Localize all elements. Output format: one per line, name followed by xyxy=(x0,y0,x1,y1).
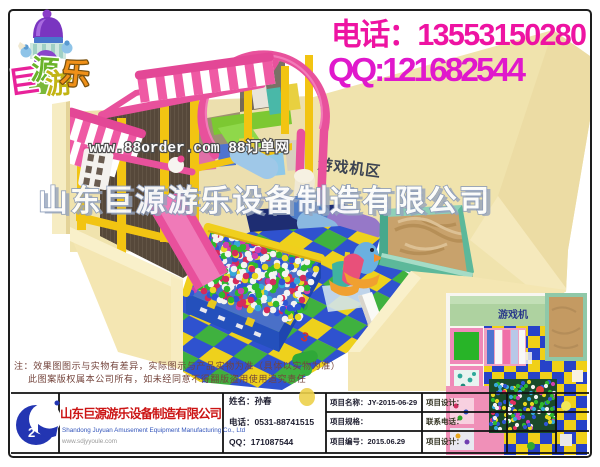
svg-text:2: 2 xyxy=(28,425,35,440)
svg-text:电话：13553150280: 电话：13553150280 xyxy=(331,18,586,52)
svg-text:项目设计：: 项目设计： xyxy=(426,436,464,446)
svg-text:游戏机: 游戏机 xyxy=(498,308,528,321)
svg-text:www.sdjyyoule.com: www.sdjyyoule.com xyxy=(61,438,117,445)
svg-text:姓名：孙春: 姓名：孙春 xyxy=(228,396,272,406)
svg-text:电话：0531-88741515: 电话：0531-88741515 xyxy=(229,417,314,427)
svg-text:此图案版权属本公司所有，如未经同意不得翻版盗用使用追究责任: 此图案版权属本公司所有，如未经同意不得翻版盗用使用追究责任 xyxy=(28,373,306,384)
svg-text:QQ：171087544: QQ：171087544 xyxy=(229,437,294,447)
svg-text:注：效果图图示与实物有差异，实际图示与产品实物为准（具体以实: 注：效果图图示与实物有差异，实际图示与产品实物为准（具体以实物为准） xyxy=(14,360,340,371)
svg-text:www.88order.com 88订单网: www.88order.com 88订单网 xyxy=(89,138,289,157)
svg-text:山东巨源游乐设备制造有限公司: 山东巨源游乐设备制造有限公司 xyxy=(60,406,222,421)
svg-text:山东巨源游乐设备制造有限公司: 山东巨源游乐设备制造有限公司 xyxy=(38,184,492,218)
svg-text:Shandong Juyuan Amusement Equi: Shandong Juyuan Amusement Equipment Manu… xyxy=(62,427,246,434)
svg-text:项目编号：2015.06.29: 项目编号：2015.06.29 xyxy=(330,436,405,446)
svg-text:项目规格：: 项目规格： xyxy=(330,416,368,426)
svg-text:乐: 乐 xyxy=(59,57,91,93)
svg-text:QQ:121682544: QQ:121682544 xyxy=(328,52,526,89)
svg-text:联系电话：: 联系电话： xyxy=(426,416,464,426)
svg-text:项目设计：: 项目设计： xyxy=(426,397,464,407)
svg-text:项目名称：JY-2015-06-29: 项目名称：JY-2015-06-29 xyxy=(330,397,417,407)
